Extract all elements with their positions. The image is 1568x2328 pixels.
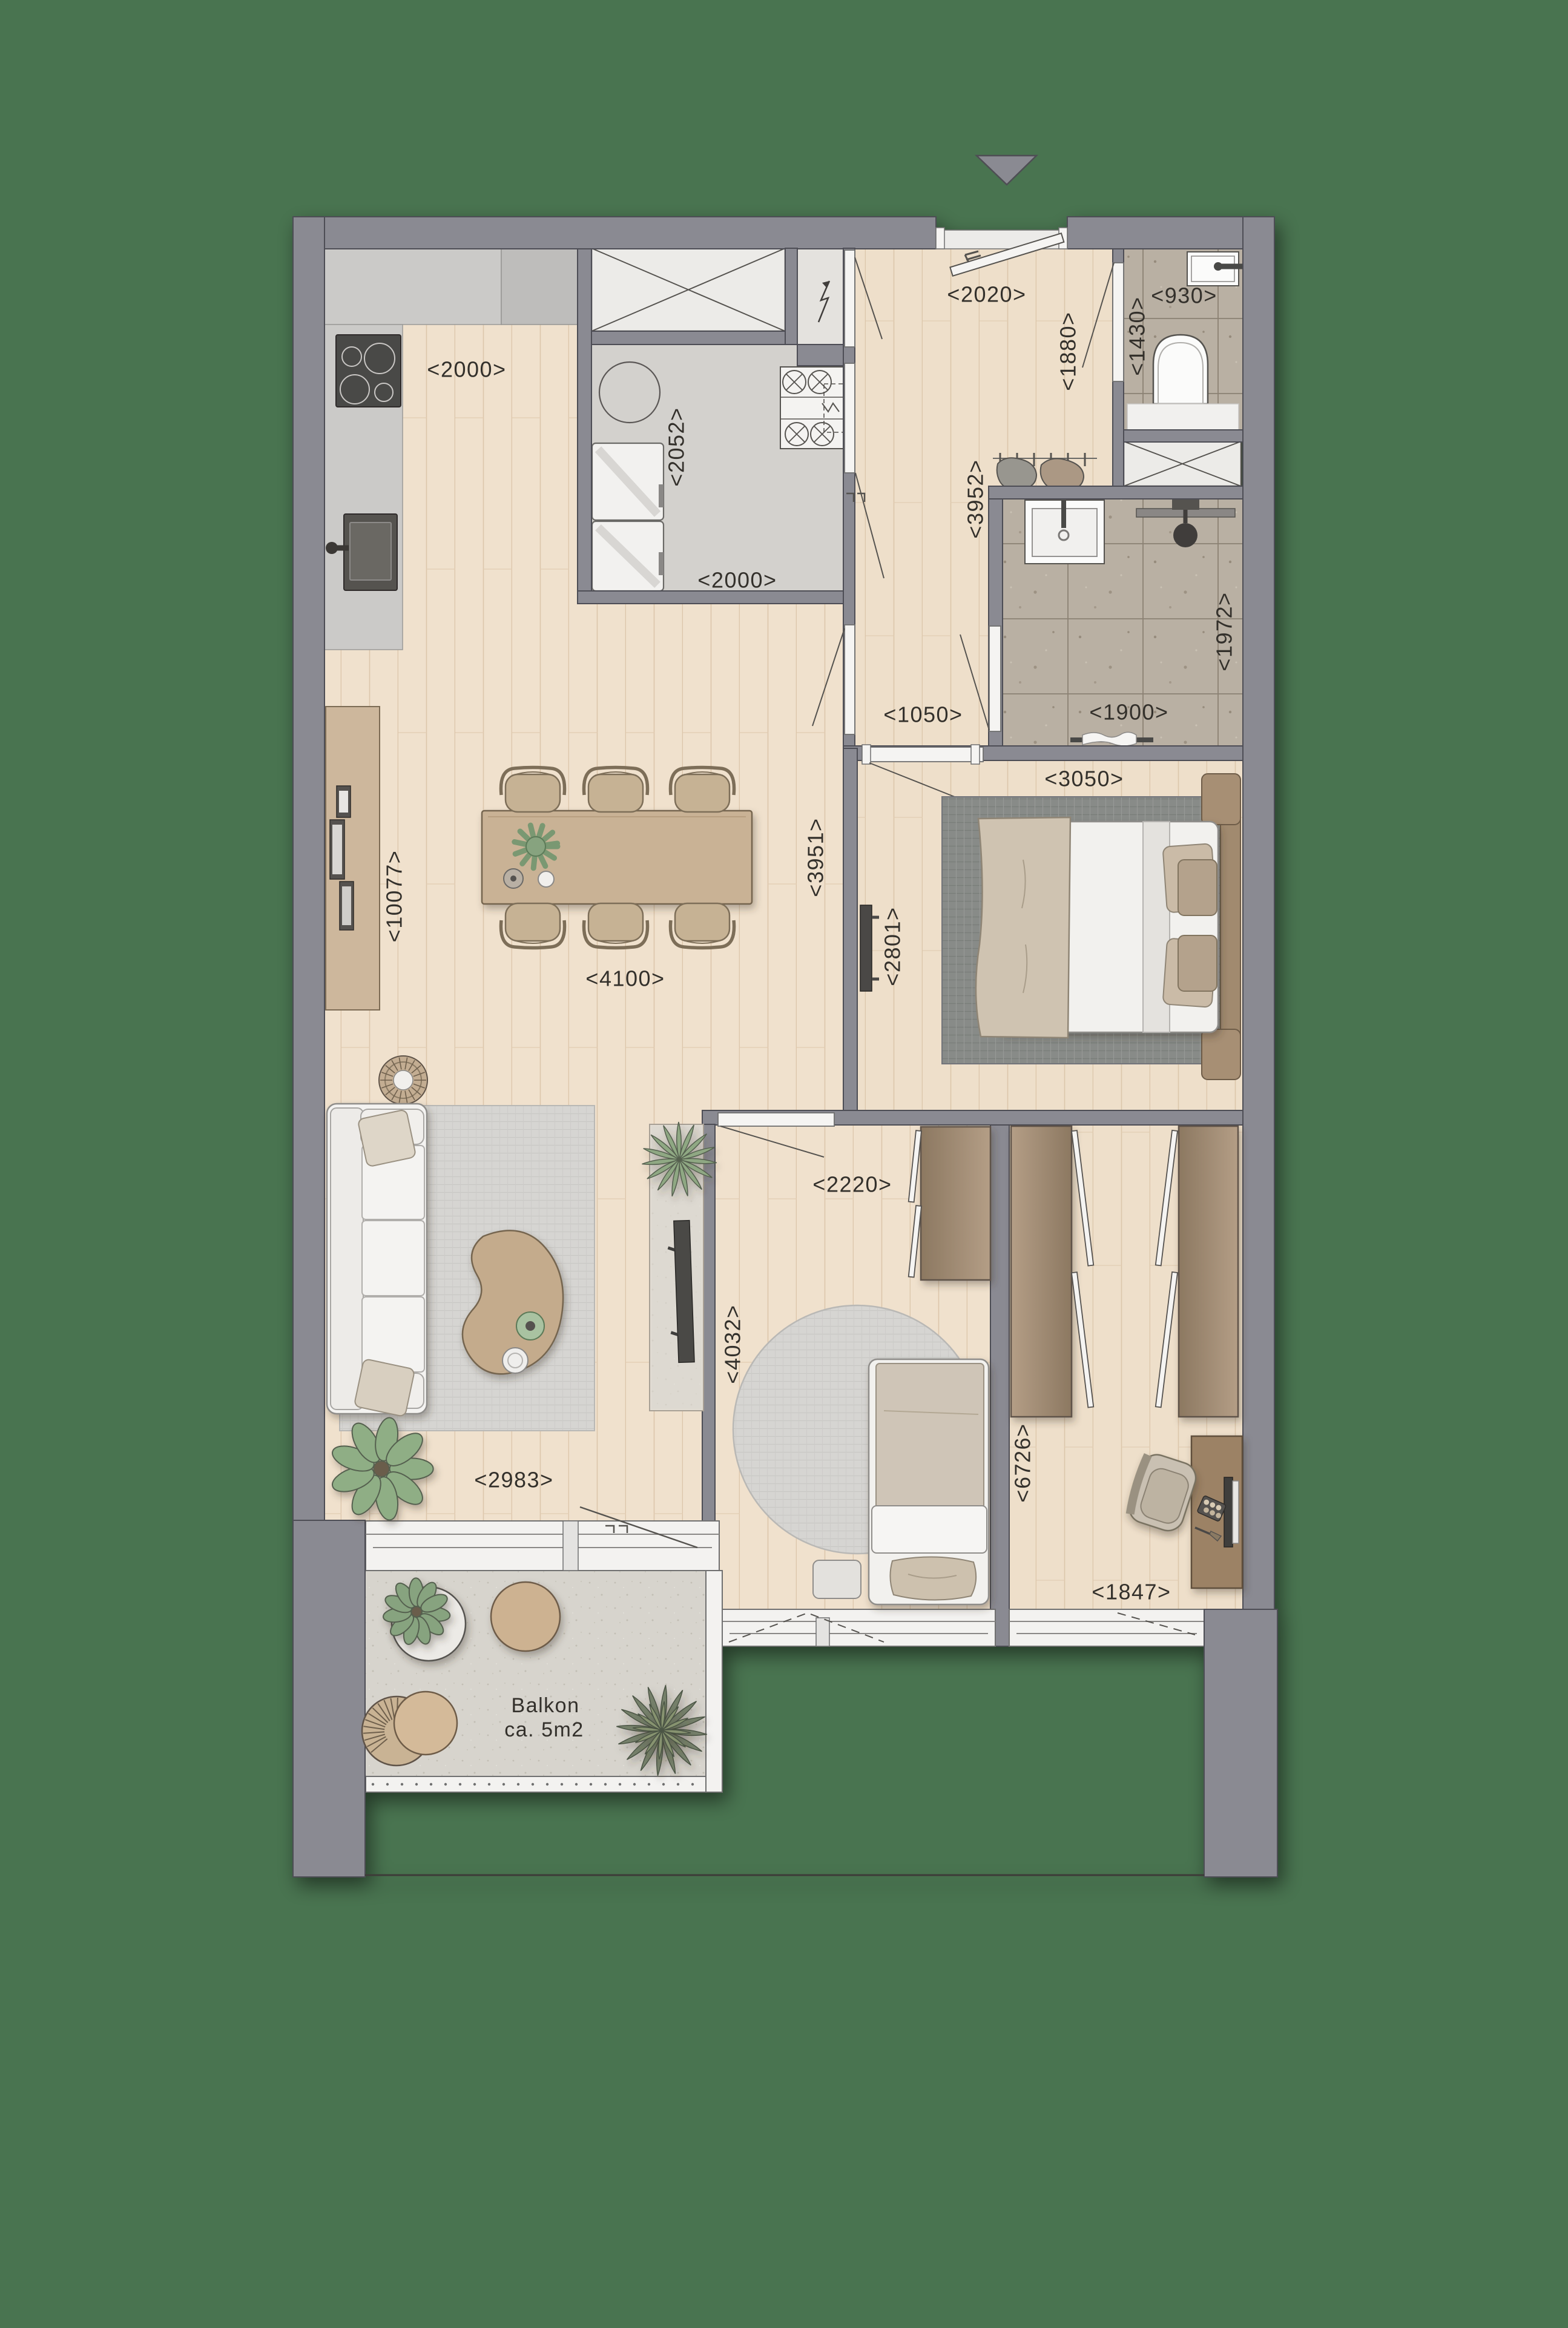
svg-text:Balkon: Balkon: [512, 1694, 580, 1717]
svg-text:<2220>: <2220>: [812, 1172, 892, 1197]
svg-text:<930>: <930>: [1151, 283, 1217, 308]
svg-text:<1880>: <1880>: [1056, 311, 1081, 391]
svg-text:<2801>: <2801>: [880, 906, 905, 986]
svg-text:ca. 5m2: ca. 5m2: [504, 1718, 584, 1741]
svg-text:<6726>: <6726>: [1010, 1423, 1035, 1502]
svg-text:<1847>: <1847>: [1092, 1580, 1171, 1604]
svg-text:<4100>: <4100>: [585, 966, 665, 991]
svg-text:<3952>: <3952>: [963, 459, 988, 538]
svg-text:<3951>: <3951>: [803, 817, 828, 897]
svg-text:<1900>: <1900>: [1089, 700, 1168, 725]
svg-text:<10077>: <10077>: [382, 850, 407, 943]
svg-text:<2983>: <2983>: [474, 1468, 553, 1492]
svg-text:<2020>: <2020>: [947, 282, 1026, 307]
svg-text:<4032>: <4032>: [720, 1304, 745, 1383]
svg-text:<3050>: <3050>: [1044, 767, 1124, 791]
svg-text:<1050>: <1050>: [883, 702, 963, 727]
svg-text:<1972>: <1972>: [1212, 592, 1237, 671]
svg-text:<2000>: <2000>: [697, 568, 777, 593]
svg-text:<2000>: <2000>: [427, 357, 506, 382]
svg-text:<2052>: <2052>: [664, 407, 689, 486]
svg-text:<1430>: <1430>: [1125, 296, 1150, 375]
